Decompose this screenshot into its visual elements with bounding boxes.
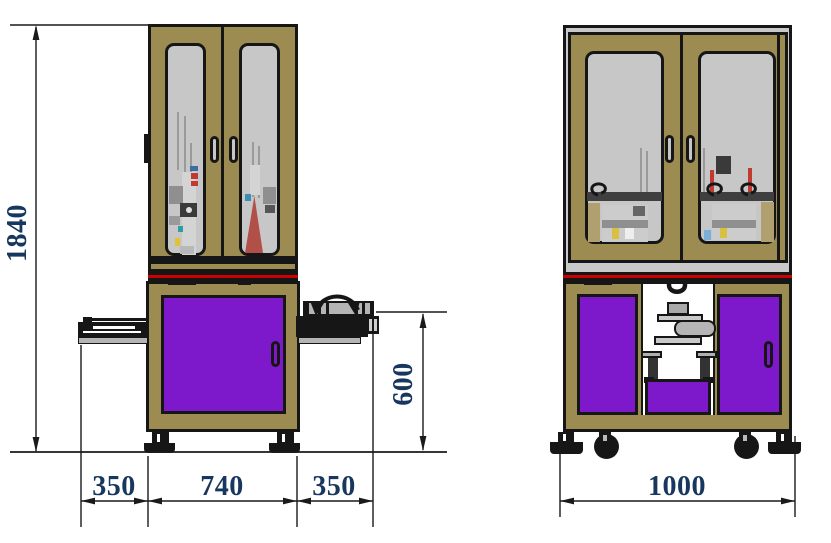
machinery-silhouette <box>191 181 198 186</box>
machinery-silhouette <box>720 228 727 238</box>
caster-mark <box>603 435 607 441</box>
support-bracket <box>696 351 717 358</box>
support-leg <box>648 358 658 379</box>
support-leg <box>700 358 710 379</box>
dimension-drawing: 1840 350 740 350 600 1000 <box>0 0 831 543</box>
conveyor-belt-line <box>93 326 135 329</box>
machinery-silhouette <box>703 148 705 192</box>
conveyor-base-strip <box>78 337 148 344</box>
motor-fin <box>374 319 377 331</box>
machinery-silhouette <box>190 166 198 171</box>
press-table <box>654 336 702 345</box>
machinery-silhouette <box>180 246 194 254</box>
table-base-strip <box>298 337 361 344</box>
disc-segment <box>358 303 362 314</box>
front-purple-door <box>161 295 286 414</box>
machinery-silhouette <box>186 207 192 213</box>
machinery-silhouette <box>265 205 275 213</box>
rotary-table-motor <box>366 316 379 334</box>
disc-segment <box>309 303 318 314</box>
press-roller <box>674 320 716 337</box>
side-red-trim-line <box>563 272 792 281</box>
side-center-purple-panel <box>645 379 711 415</box>
machinery-silhouette <box>704 230 711 240</box>
caster-mark <box>743 435 747 441</box>
conveyor-rail <box>86 318 148 321</box>
rotary-table-body <box>296 316 368 337</box>
dim-table-height-label: 600 <box>389 344 419 424</box>
side-panel-divider <box>777 35 780 260</box>
machinery-rail <box>587 192 662 201</box>
side-door-divider <box>680 35 683 260</box>
machinery-silhouette <box>169 216 180 225</box>
leveling-foot-base <box>768 442 801 454</box>
machinery-rail <box>700 192 774 201</box>
dim-height-label: 1840 <box>3 193 33 273</box>
front-left-door-handle <box>210 136 219 163</box>
machinery-silhouette <box>640 148 642 192</box>
foot-mark <box>563 434 566 441</box>
front-purple-door-handle <box>271 341 280 367</box>
dim-right-offset-label: 350 <box>294 472 374 502</box>
side-right-door-handle <box>686 135 695 163</box>
machinery-silhouette <box>250 165 260 195</box>
front-red-trim-line <box>148 272 298 281</box>
front-door-divider <box>221 27 224 256</box>
foot-mark <box>282 434 285 442</box>
machinery-silhouette <box>612 228 619 239</box>
disc-segment <box>329 303 356 314</box>
conveyor-belt-line <box>83 331 141 333</box>
motor-fin <box>369 319 372 331</box>
disc-segment <box>321 303 326 314</box>
side-left-door-handle <box>665 135 674 163</box>
machinery-silhouette <box>625 228 634 239</box>
machinery-silhouette <box>716 156 731 174</box>
machinery-silhouette <box>169 186 183 204</box>
machinery-silhouette <box>245 194 251 201</box>
machinery-silhouette <box>263 187 276 204</box>
leveling-foot-base <box>550 442 583 454</box>
cabinet-notch <box>168 281 196 285</box>
leveling-foot-base <box>269 443 300 453</box>
machinery-silhouette <box>602 220 648 228</box>
front-right-door-handle <box>229 136 238 163</box>
cabinet-notch <box>584 281 612 285</box>
cabinet-notch <box>238 281 251 285</box>
machinery-silhouette <box>177 112 179 170</box>
machinery-silhouette <box>712 220 756 228</box>
foot-mark <box>781 434 784 441</box>
front-door-hinge <box>144 134 149 163</box>
machinery-silhouette <box>588 203 600 242</box>
machinery-silhouette <box>184 116 186 174</box>
machinery-silhouette <box>633 206 645 216</box>
side-purple-door-handle <box>764 341 773 368</box>
front-door-bottom-rail <box>151 256 295 264</box>
dim-left-offset-label: 350 <box>74 472 154 502</box>
machinery-silhouette <box>646 151 648 192</box>
support-bracket <box>641 351 662 358</box>
machinery-silhouette <box>761 202 774 242</box>
side-left-purple-panel <box>577 294 638 415</box>
leveling-foot-base <box>144 443 175 453</box>
disc-segment <box>365 303 370 314</box>
machinery-silhouette <box>748 168 752 194</box>
machinery-silhouette <box>175 238 180 246</box>
machinery-silhouette <box>191 173 198 179</box>
machinery-silhouette <box>178 226 183 232</box>
foot-mark <box>157 434 160 442</box>
dim-body-width-label: 740 <box>182 472 262 502</box>
dim-side-width-label: 1000 <box>627 472 727 502</box>
left-conveyor <box>78 322 148 337</box>
